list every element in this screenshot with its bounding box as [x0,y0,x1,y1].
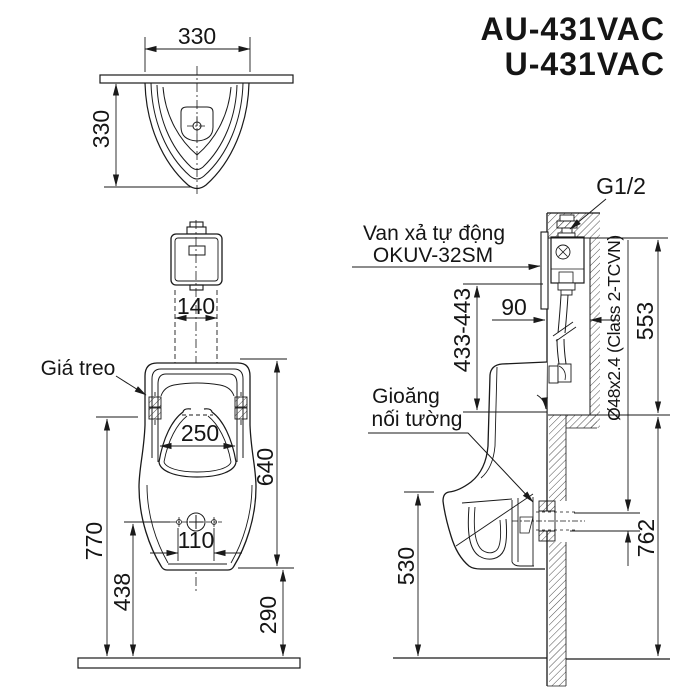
model-number-1: AU-431VAC [481,13,665,47]
dim-top-depth: 330 [89,110,113,148]
supply-pipe [549,295,576,383]
floor-line-front [78,658,300,668]
dim-top-width: 330 [178,24,216,48]
label-drain-pipe-spec: Ø48x2.4 (Class 2-TCVN) [605,235,623,421]
dim-hole-spacing: 110 [178,528,215,552]
dim-bottom-clearance: 290 [256,596,280,634]
label-wall-gasket-line2: nối tường [372,409,463,431]
wall-bar [100,75,293,83]
urinal-body-side [443,362,547,569]
dim-total-height: 640 [253,448,277,486]
bracket-leader [116,376,146,395]
top-view [100,37,293,197]
dim-niche-depth: 90 [501,295,527,319]
label-flush-valve-line2: OKUV-32SM [373,245,493,267]
label-wall-gasket-line1: Gioăng [372,386,440,408]
urinal-technical-drawing [0,0,700,700]
flush-valve-front [171,222,222,290]
technical-drawing-page: AU-431VAC U-431VAC 330 330 140 250 640 1… [0,0,700,700]
dim-outlet-height: 762 [634,519,658,557]
dim-rim-height: 770 [82,522,106,560]
dim-valve-width: 140 [177,294,215,318]
dim-valve-drop: 433-443 [450,288,474,372]
label-bracket: Giá treo [41,358,116,380]
top-view-dimensions [104,37,250,187]
label-inlet-thread: G1/2 [596,174,646,198]
dim-hole-height: 438 [110,573,134,611]
model-number-2: U-431VAC [505,48,665,82]
dim-lip-height: 530 [394,547,418,585]
label-flush-valve-line1: Van xả tự động [363,223,505,245]
flush-valve-side [541,232,584,309]
dim-niche-height: 553 [633,302,657,340]
dim-bowl-width: 250 [181,421,219,445]
inlet-fitting-g12 [557,215,577,238]
